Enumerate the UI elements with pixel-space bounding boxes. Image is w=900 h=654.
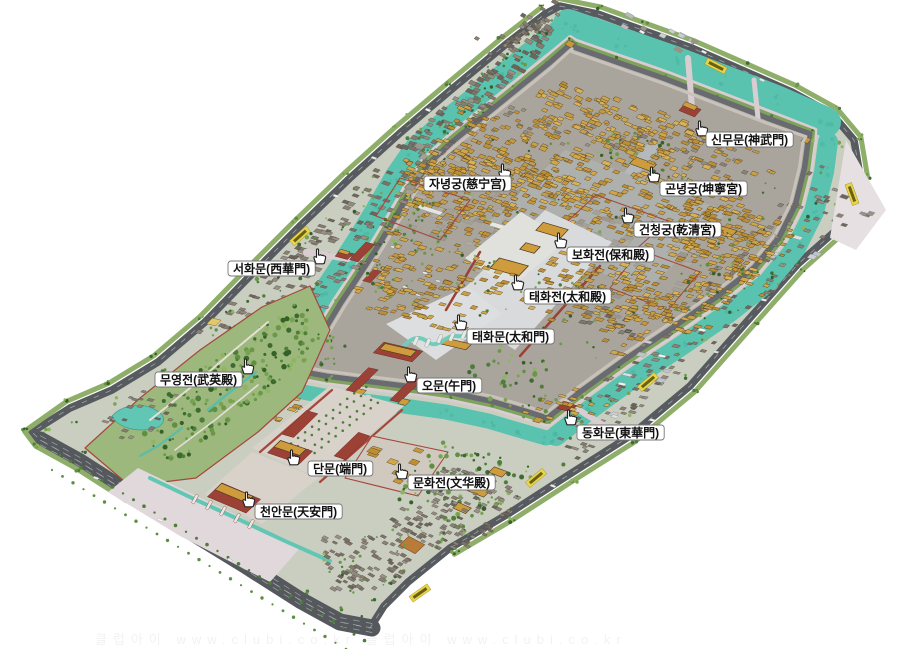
svg-text:클럽아이 www.clubi.co.kr 클럽아이 www.: 클럽아이 www.clubi.co.kr 클럽아이 www.clubi.co.k…: [95, 632, 627, 647]
svg-text:태화전(太和殿): 태화전(太和殿): [529, 289, 606, 304]
svg-text:자녕궁(慈宁宫): 자녕궁(慈宁宫): [429, 176, 506, 191]
svg-text:건청궁(乾清宮): 건청궁(乾清宮): [639, 222, 716, 237]
svg-text:신무문(神武門): 신무문(神武門): [711, 132, 788, 147]
svg-text:곤녕궁(坤寧宮): 곤녕궁(坤寧宮): [665, 181, 742, 196]
svg-text:태화문(太和門): 태화문(太和門): [472, 329, 549, 344]
svg-text:문화전(文华殿): 문화전(文华殿): [413, 475, 490, 490]
svg-text:무영전(武英殿): 무영전(武英殿): [160, 372, 237, 387]
svg-text:동화문(東華門): 동화문(東華門): [582, 425, 659, 440]
svg-text:서화문(西華門): 서화문(西華門): [233, 261, 310, 276]
svg-text:보화전(保和殿): 보화전(保和殿): [572, 247, 649, 262]
svg-text:단문(端門): 단문(端門): [313, 461, 367, 476]
svg-text:천안문(天安門): 천안문(天安門): [260, 504, 337, 519]
svg-text:오문(午門): 오문(午門): [422, 378, 476, 393]
